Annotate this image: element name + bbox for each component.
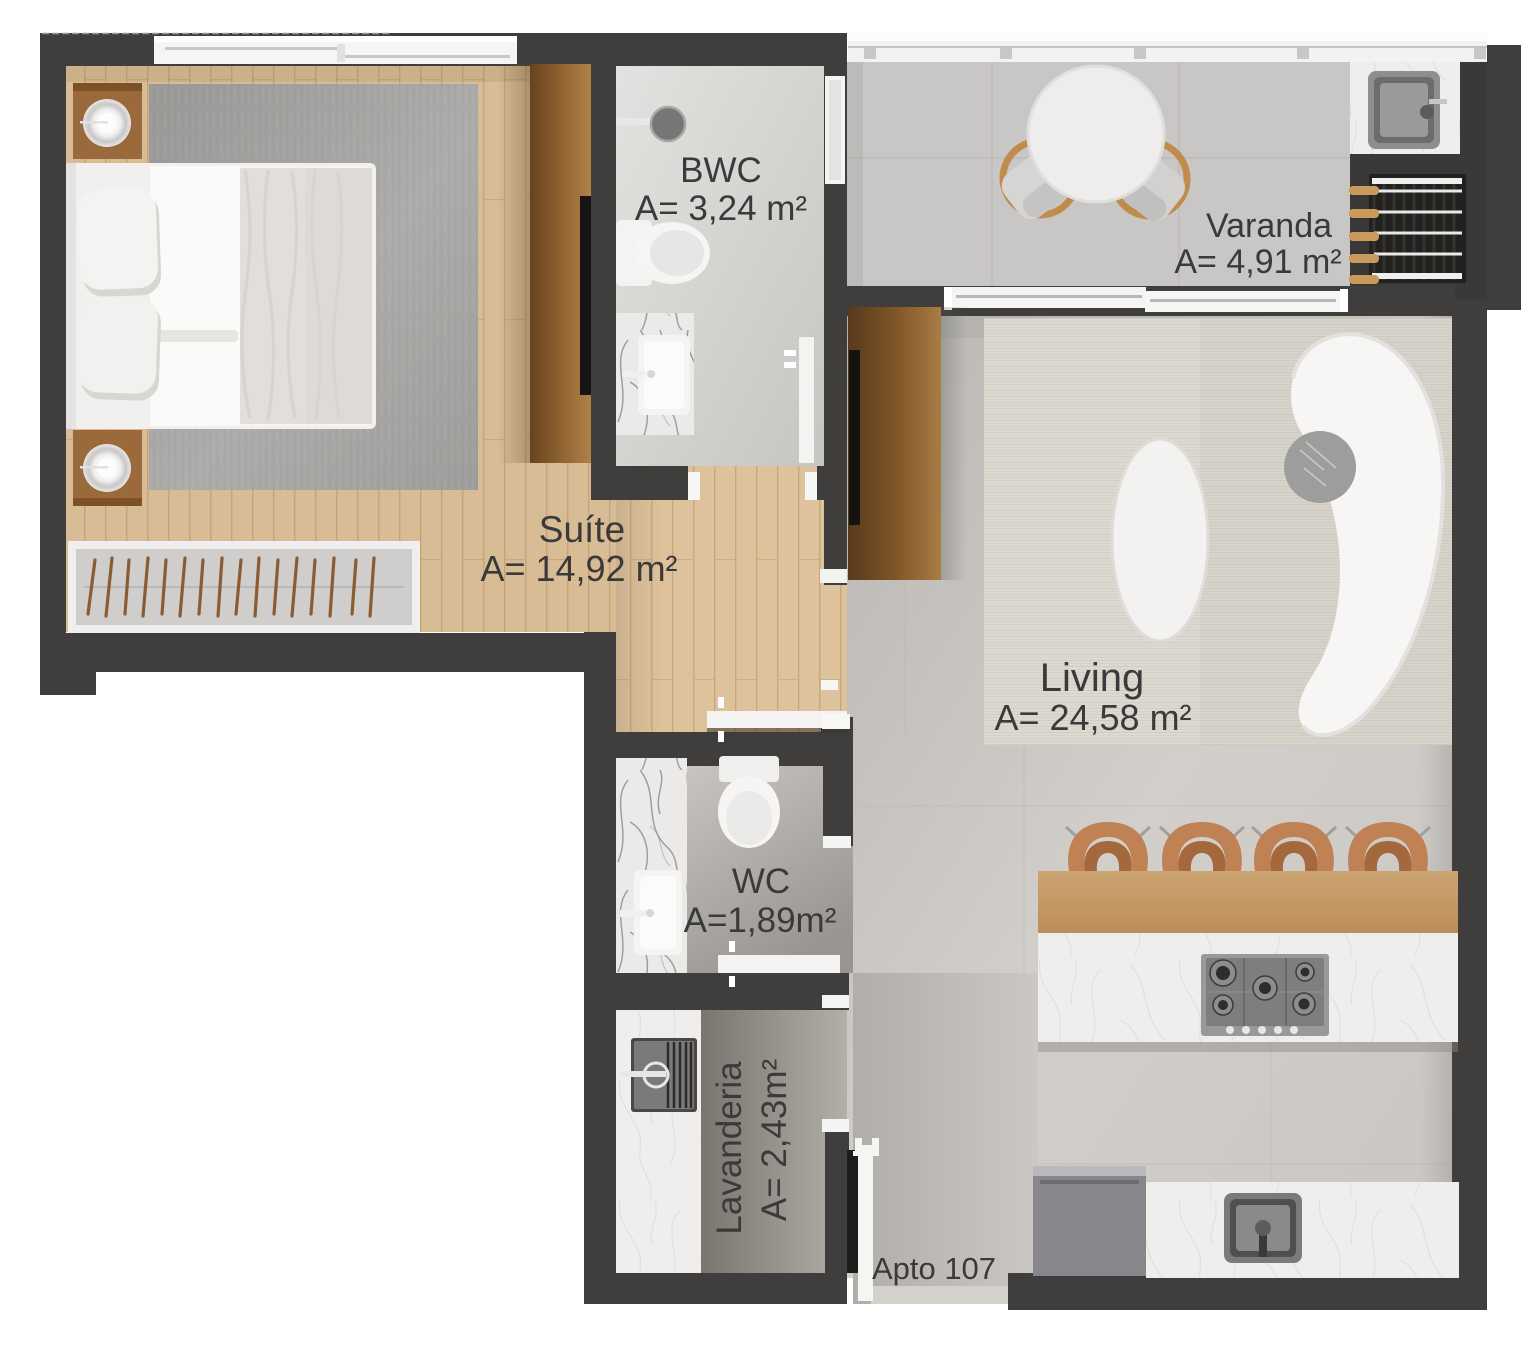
svg-text:A= 2,43m²: A= 2,43m² — [755, 1059, 794, 1221]
svg-text:A= 4,91 m²: A= 4,91 m² — [1174, 243, 1341, 281]
svg-text:A=1,89m²: A=1,89m² — [684, 901, 837, 940]
svg-text:Lavanderia: Lavanderia — [710, 1061, 749, 1235]
svg-text:Varanda: Varanda — [1206, 207, 1332, 245]
svg-text:A= 3,24 m²: A= 3,24 m² — [635, 189, 807, 228]
svg-text:Apto 107: Apto 107 — [872, 1251, 996, 1286]
svg-text:A= 14,92 m²: A= 14,92 m² — [480, 548, 677, 589]
svg-text:BWC: BWC — [680, 151, 762, 190]
svg-text:WC: WC — [732, 862, 790, 901]
svg-text:A= 24,58 m²: A= 24,58 m² — [994, 697, 1191, 738]
svg-text:Living: Living — [1040, 656, 1145, 700]
svg-text:Suíte: Suíte — [539, 509, 625, 550]
